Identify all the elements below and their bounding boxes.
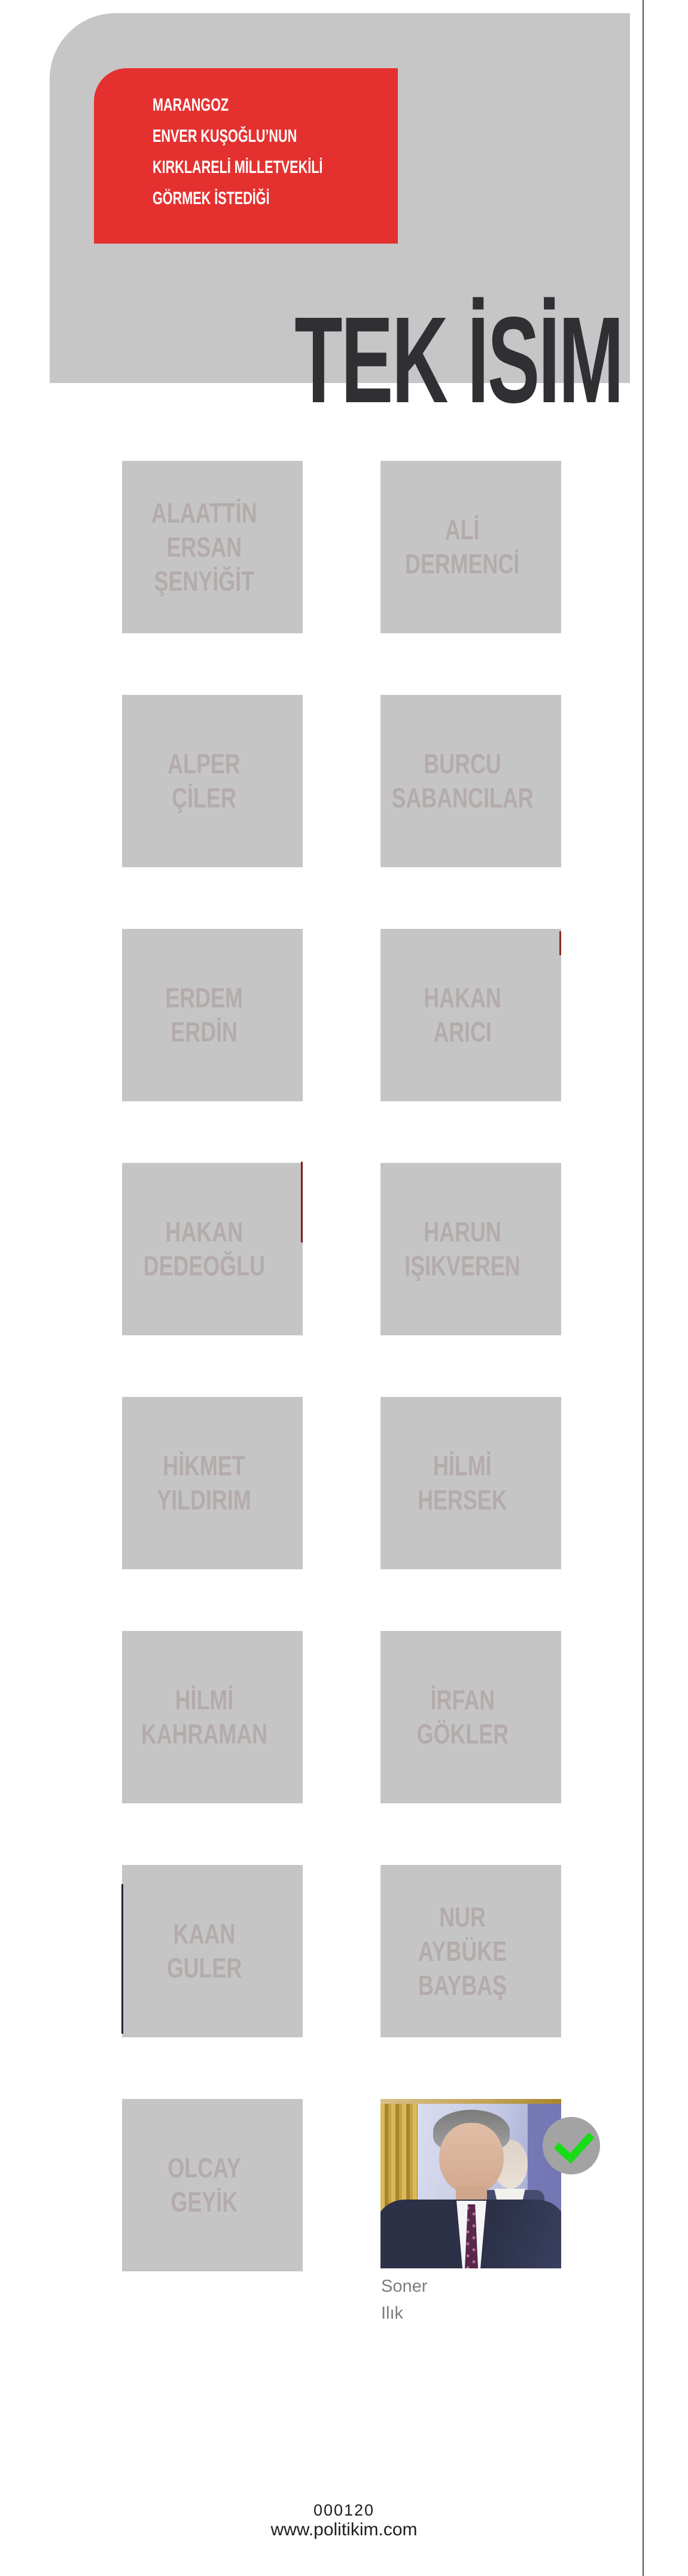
footer-code: 000120: [0, 2501, 688, 2520]
selected-candidate-photo: [380, 2099, 561, 2268]
candidate-name: OLCAYGEYİK: [168, 2151, 241, 2219]
candidate-box: ALİDERMENCİ: [380, 461, 561, 633]
gold-frame-top: [380, 2099, 561, 2104]
candidate-name: ALİDERMENCİ: [405, 513, 519, 581]
footer-url: www.politikim.com: [0, 2520, 688, 2540]
candidate-face: [439, 2123, 504, 2194]
candidate-name: BURCUSABANCILAR: [391, 747, 533, 815]
artifact-sliver: [559, 931, 561, 955]
kicker-line: GÖRMEK İSTEDİĞİ: [153, 183, 329, 214]
artifact-sliver: [301, 1162, 303, 1243]
kicker-line: KIRKLARELİ MİLLETVEKİLİ: [153, 152, 329, 183]
candidate-box: ERDEMERDİN: [122, 929, 303, 1101]
footer: 000120 www.politikim.com: [0, 2501, 688, 2540]
check-icon: [553, 2122, 594, 2164]
candidate-name: ERDEMERDİN: [165, 981, 243, 1049]
caption-line: Ilık: [381, 2300, 427, 2327]
candidate-name: NURAYBÜKEBAYBAŞ: [418, 1900, 507, 2003]
right-border-line: [643, 0, 644, 2576]
candidate-name: KAANGULER: [166, 1917, 242, 1985]
candidate-name: HAKANARICI: [424, 981, 501, 1049]
candidate-name: HİKMETYILDIRIM: [157, 1449, 251, 1517]
candidate-box: HARUNIŞIKVEREN: [380, 1163, 561, 1335]
candidate-box: OLCAYGEYİK: [122, 2099, 303, 2271]
candidate-box: HİLMİHERSEK: [380, 1397, 561, 1569]
candidate-box: HAKANDEDEOĞLU: [122, 1163, 303, 1335]
candidate-box: ALAATTİNERSANŞENYİĞİT: [122, 461, 303, 633]
candidate-box: HİKMETYILDIRIM: [122, 1397, 303, 1569]
candidate-box: ALPERÇİLER: [122, 695, 303, 867]
selected-check-badge: [543, 2117, 600, 2174]
poster-page: MARANGOZ ENVER KUŞOĞLU’NUN KIRKLARELİ Mİ…: [0, 0, 688, 2576]
kicker-line: MARANGOZ: [153, 90, 329, 121]
candidate-name: ALAATTİNERSANŞENYİĞİT: [151, 496, 257, 599]
candidate-name: ALPERÇİLER: [168, 747, 241, 815]
candidate-name: HARUNIŞIKVEREN: [404, 1215, 520, 1283]
header-panel: MARANGOZ ENVER KUŞOĞLU’NUN KIRKLARELİ Mİ…: [50, 13, 630, 383]
artifact-sliver: [121, 1884, 123, 2034]
candidate-box: KAANGULER: [122, 1865, 303, 2037]
candidate-box: BURCUSABANCILAR: [380, 695, 561, 867]
caption-line: Soner: [381, 2273, 427, 2300]
selected-candidate-caption: Soner Ilık: [381, 2273, 427, 2327]
candidate-name: HİLMİKAHRAMAN: [141, 1683, 267, 1751]
page-title: TEK İSİM: [294, 312, 622, 408]
kicker-line: ENVER KUŞOĞLU’NUN: [153, 121, 329, 152]
candidate-name: HİLMİHERSEK: [418, 1449, 507, 1517]
candidate-name: İRFANGÖKLER: [416, 1683, 508, 1751]
kicker-box: MARANGOZ ENVER KUŞOĞLU’NUN KIRKLARELİ Mİ…: [94, 68, 398, 244]
candidate-box: HAKANARICI: [380, 929, 561, 1101]
candidate-name: HAKANDEDEOĞLU: [143, 1215, 264, 1283]
candidate-box: HİLMİKAHRAMAN: [122, 1631, 303, 1803]
candidate-box: NURAYBÜKEBAYBAŞ: [380, 1865, 561, 2037]
candidate-box: İRFANGÖKLER: [380, 1631, 561, 1803]
